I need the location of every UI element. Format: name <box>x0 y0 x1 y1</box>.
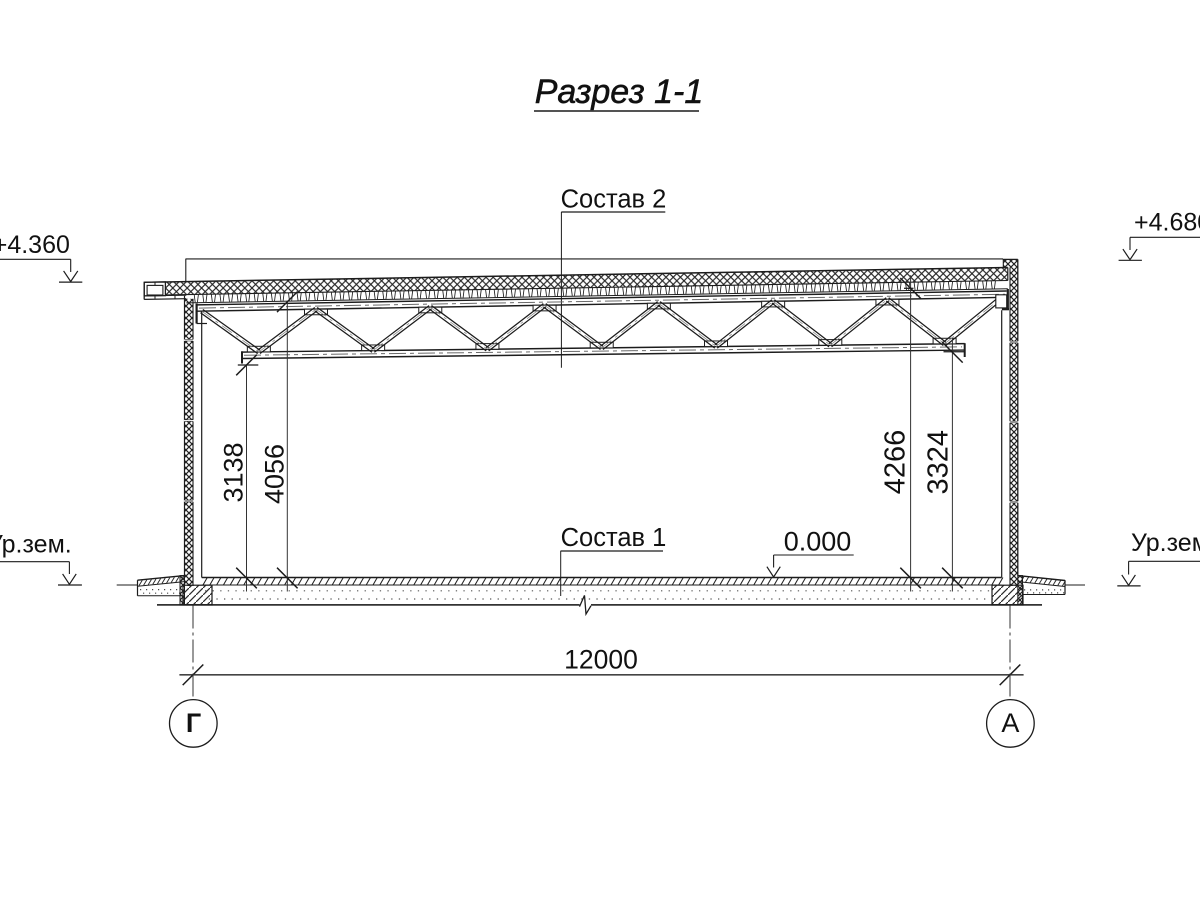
svg-text:+4.680: +4.680 <box>1134 209 1200 237</box>
svg-text:Г: Г <box>186 708 201 738</box>
svg-text:Разрез 1-1: Разрез 1-1 <box>535 73 703 111</box>
svg-text:Состав 1: Состав 1 <box>561 524 667 552</box>
svg-text:Состав 2: Состав 2 <box>561 185 667 213</box>
svg-text:Ур.зем.: Ур.зем. <box>0 531 72 559</box>
svg-text:4266: 4266 <box>880 430 912 495</box>
svg-text:12000: 12000 <box>564 644 638 674</box>
svg-text:4056: 4056 <box>260 444 290 504</box>
svg-text:0.000: 0.000 <box>784 526 852 556</box>
svg-text:3138: 3138 <box>219 442 249 502</box>
svg-text:Ур.зем.: Ур.зем. <box>1131 529 1200 557</box>
svg-text:3324: 3324 <box>923 430 955 495</box>
svg-text:+4.360: +4.360 <box>0 231 70 259</box>
svg-text:А: А <box>1001 708 1019 738</box>
